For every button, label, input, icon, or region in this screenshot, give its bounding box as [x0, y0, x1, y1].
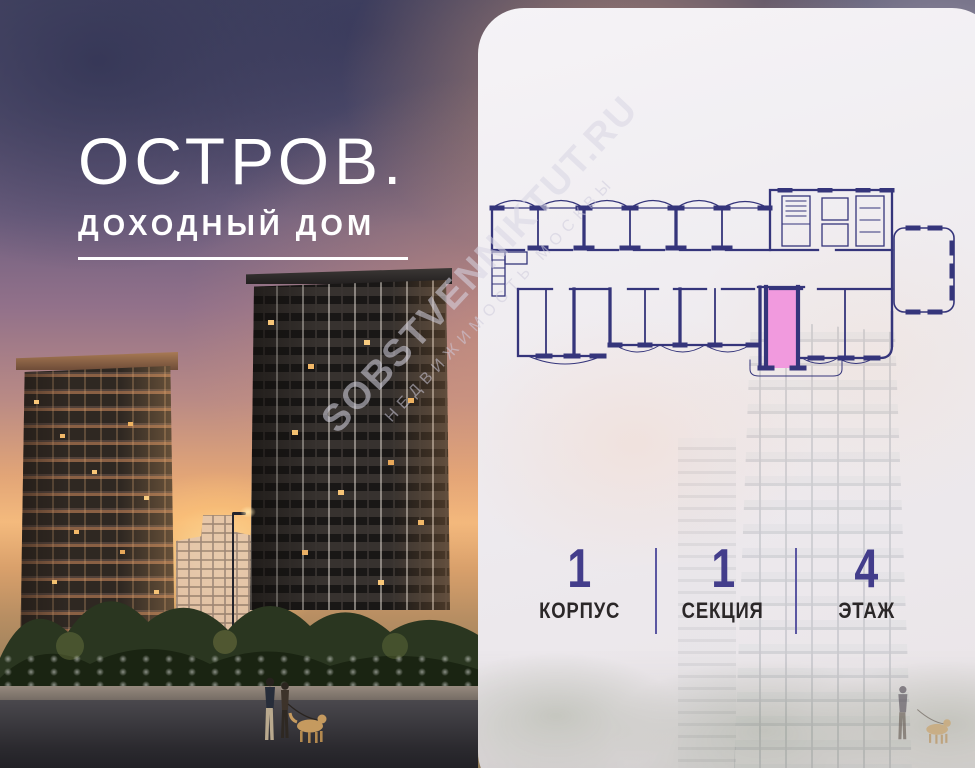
section-label: СЕКЦИЯ	[663, 599, 783, 623]
stats-divider	[795, 548, 797, 634]
project-subtitle: ДОХОДНЫЙ ДОМ	[78, 210, 430, 243]
elevator-shaft-1	[822, 198, 848, 220]
stats-divider	[655, 548, 657, 634]
stat-building: 1 КОРПУС	[508, 540, 651, 640]
stat-section: 1 СЕКЦИЯ	[651, 540, 794, 640]
building-number: 1	[568, 540, 592, 596]
brand-block: ОСТРОВ. ДОХОДНЫЙ ДОМ	[78, 128, 430, 260]
street-lamp-glow	[240, 506, 256, 518]
title-underline	[78, 257, 408, 260]
highlighted-unit	[768, 287, 796, 368]
right-wing	[894, 228, 954, 312]
listing-card: 1 КОРПУС 1 СЕКЦИЯ 4 ЭТАЖ SOBSTVE	[0, 0, 975, 768]
project-title: ОСТРОВ.	[78, 128, 430, 194]
floor-number: 4	[854, 540, 878, 596]
pedestrians-with-dog-ghost	[874, 676, 966, 752]
floor-label: ЭТАЖ	[806, 599, 926, 623]
floor-plan-panel: 1 КОРПУС 1 СЕКЦИЯ 4 ЭТАЖ	[478, 8, 975, 768]
section-number: 1	[711, 540, 735, 596]
unit-location-stats: 1 КОРПУС 1 СЕКЦИЯ 4 ЭТАЖ	[508, 540, 938, 640]
pedestrians-with-dog	[238, 674, 340, 748]
lit-windows-left-tower	[34, 400, 39, 404]
stat-floor: 4 ЭТАЖ	[795, 540, 938, 640]
stair-shaft	[782, 196, 810, 246]
building-label: КОРПУС	[519, 599, 639, 623]
stairwell-left	[492, 252, 505, 296]
elevator-shaft-2	[822, 224, 848, 246]
floor-plan	[488, 188, 958, 388]
lit-windows-right-tower	[268, 320, 274, 325]
